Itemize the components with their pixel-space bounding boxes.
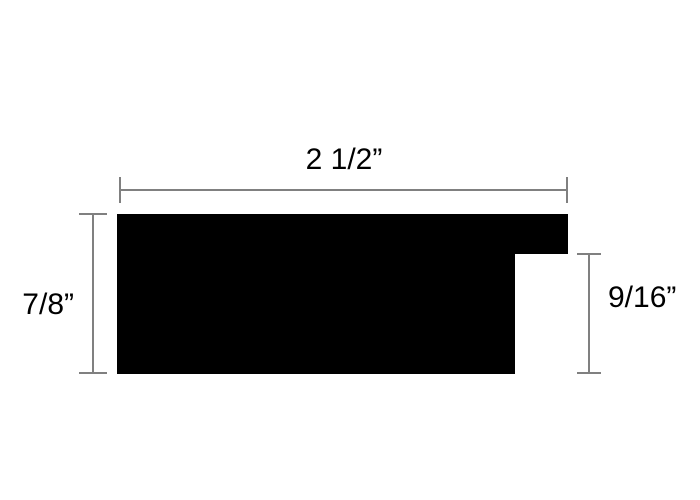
rabbet-dimension-tick-bottom (577, 372, 601, 374)
height-dimension-tick-bottom (79, 372, 107, 374)
width-dimension-label: 2 1/2” (244, 145, 444, 175)
height-dimension-label: 7/8” (0, 290, 74, 320)
profile-shape-top-strip (117, 214, 568, 254)
profile-shape-body (117, 254, 515, 374)
width-dimension-tick-right (566, 177, 568, 203)
rabbet-dimension-label: 9/16” (608, 283, 676, 313)
width-dimension-tick-left (119, 177, 121, 203)
moulding-profile-diagram: 2 1/2” 7/8” 9/16” (0, 0, 700, 500)
height-dimension-tick-top (79, 213, 107, 215)
width-dimension-line (119, 189, 568, 191)
rabbet-dimension-tick-top (577, 253, 601, 255)
height-dimension-line (92, 214, 94, 374)
rabbet-dimension-line (588, 254, 590, 374)
